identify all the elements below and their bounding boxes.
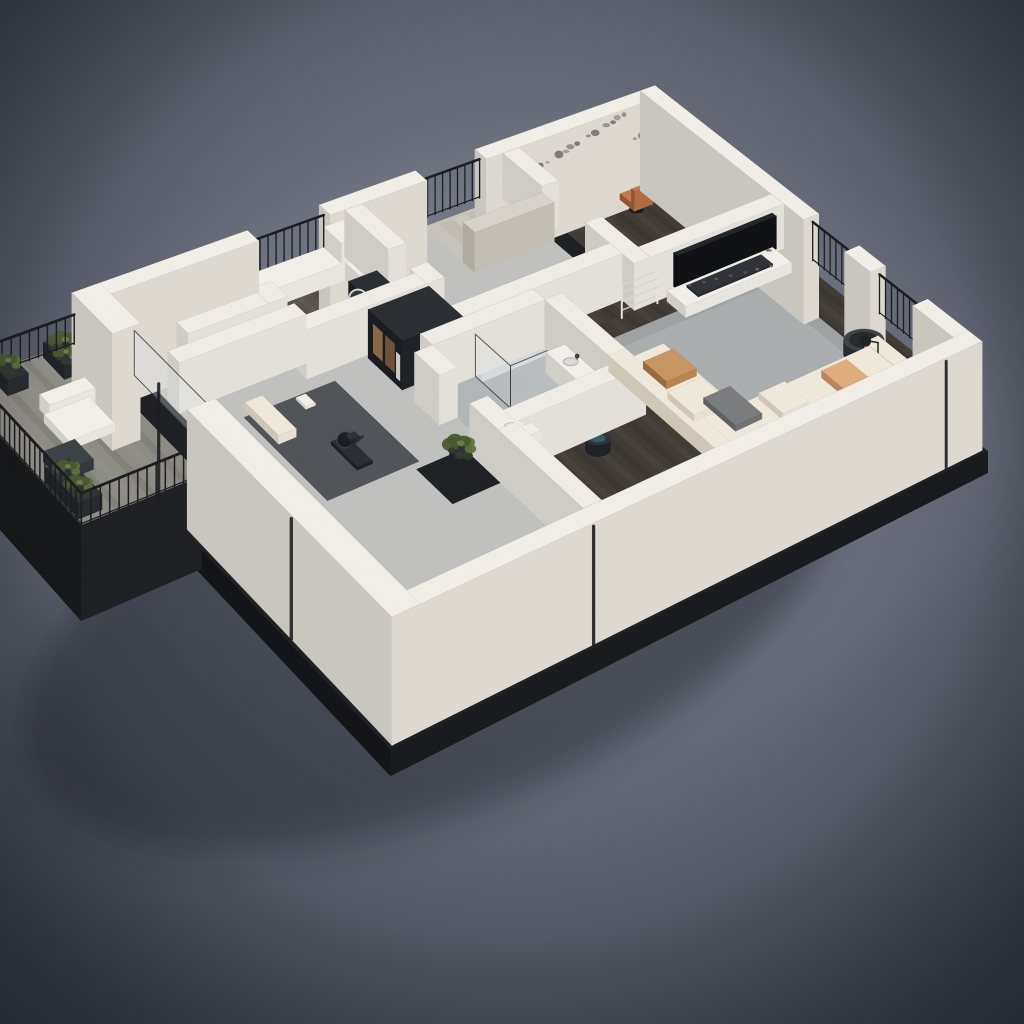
film-grain [0,0,1024,1024]
floorplan-render-canvas: Isometric 3D floor plan render of an apa… [0,0,1024,1024]
effects [0,0,1024,1024]
isometric-floorplan-svg [0,0,1024,1024]
